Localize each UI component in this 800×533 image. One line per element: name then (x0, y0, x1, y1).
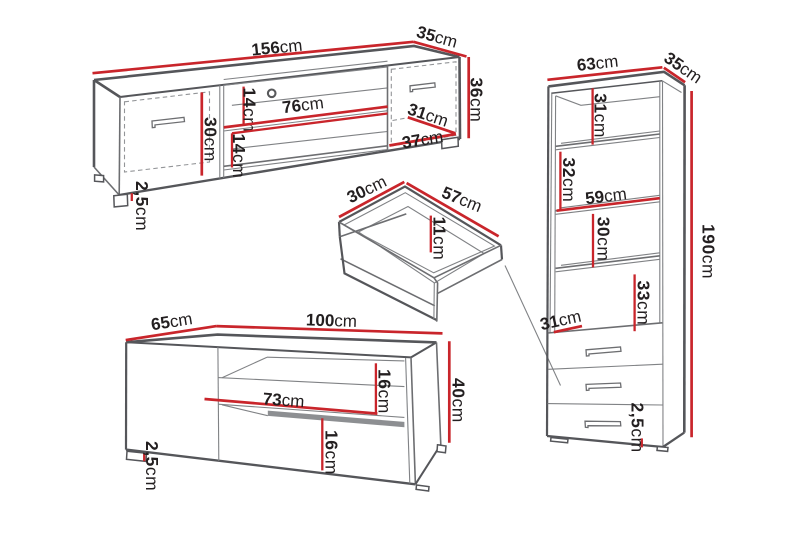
svg-text:31cm: 31cm (590, 93, 610, 138)
svg-text:14cm: 14cm (229, 134, 249, 179)
svg-text:2,5cm: 2,5cm (628, 403, 648, 453)
svg-text:33cm: 33cm (634, 281, 654, 326)
svg-text:16cm: 16cm (375, 369, 395, 414)
svg-text:2,5cm: 2,5cm (142, 441, 162, 491)
svg-text:100cm: 100cm (306, 310, 358, 331)
svg-text:2,5cm: 2,5cm (132, 181, 152, 231)
svg-text:30cm: 30cm (201, 117, 221, 162)
svg-text:32cm: 32cm (559, 158, 579, 203)
svg-text:30cm: 30cm (593, 217, 613, 262)
svg-text:40cm: 40cm (448, 378, 468, 423)
svg-text:36cm: 36cm (467, 78, 487, 123)
svg-text:73cm: 73cm (262, 389, 305, 411)
svg-text:16cm: 16cm (321, 430, 341, 475)
svg-text:190cm: 190cm (699, 224, 719, 279)
svg-text:11cm: 11cm (430, 217, 450, 261)
